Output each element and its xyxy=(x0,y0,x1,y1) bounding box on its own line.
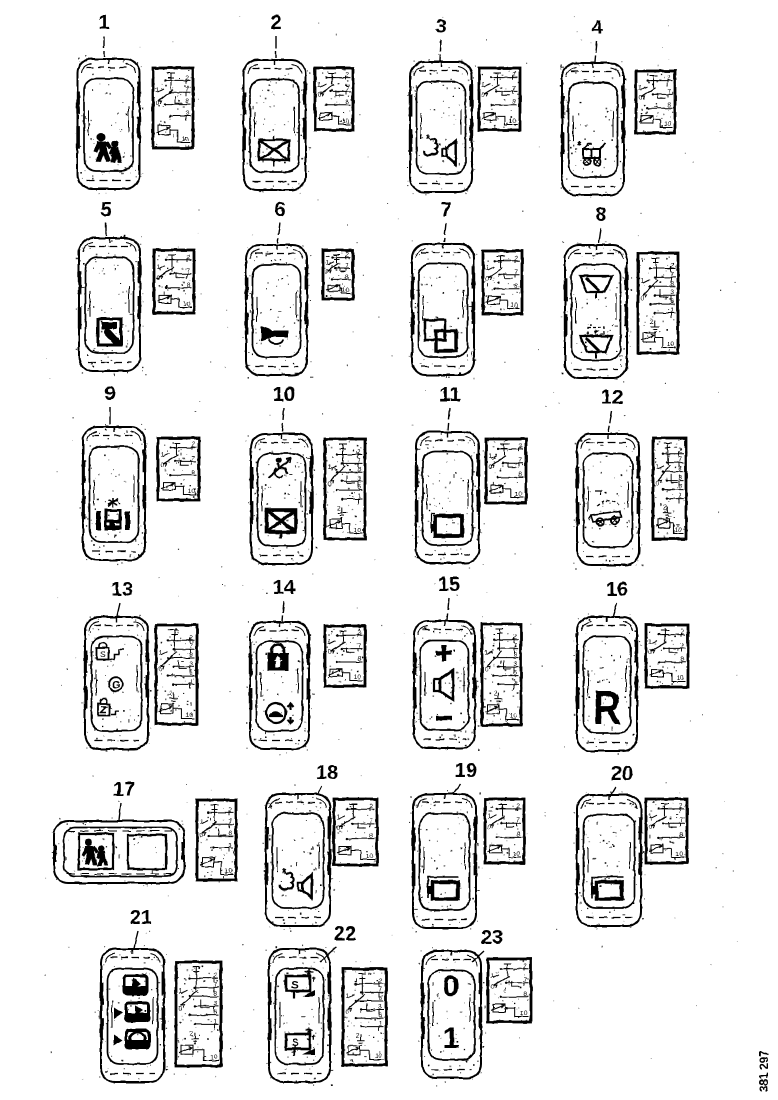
svg-text:0: 0 xyxy=(328,481,332,488)
svg-text:381 297: 381 297 xyxy=(759,1050,771,1092)
svg-text:6: 6 xyxy=(189,670,193,677)
svg-text:21: 21 xyxy=(130,907,152,929)
svg-text:2: 2 xyxy=(270,12,281,34)
svg-text:18: 18 xyxy=(316,762,338,784)
svg-text:7: 7 xyxy=(357,457,361,464)
svg-text:2: 2 xyxy=(337,505,341,512)
svg-text:8: 8 xyxy=(357,466,361,473)
svg-text:G: G xyxy=(112,679,120,691)
svg-text:8: 8 xyxy=(514,283,518,290)
svg-text:8: 8 xyxy=(670,280,674,287)
svg-text:0: 0 xyxy=(488,824,492,831)
svg-text:7: 7 xyxy=(228,818,232,825)
svg-text:7: 7 xyxy=(189,643,193,650)
svg-text:7: 7 xyxy=(512,85,516,92)
svg-text:1: 1 xyxy=(328,464,332,471)
svg-text:22: 22 xyxy=(334,923,356,945)
svg-text:7: 7 xyxy=(440,199,451,221)
svg-text:2: 2 xyxy=(228,806,232,813)
svg-text:3: 3 xyxy=(189,661,193,668)
svg-text:2: 2 xyxy=(345,72,349,79)
svg-text:0: 0 xyxy=(641,295,645,302)
svg-text:20: 20 xyxy=(611,763,633,785)
svg-text:1: 1 xyxy=(639,85,643,92)
svg-text:8: 8 xyxy=(189,652,193,659)
svg-text:1: 1 xyxy=(641,278,645,285)
svg-text:8: 8 xyxy=(523,991,527,998)
svg-text:3: 3 xyxy=(513,661,517,668)
svg-text:1: 1 xyxy=(649,813,653,820)
svg-text:1: 1 xyxy=(213,1018,217,1025)
svg-text:8: 8 xyxy=(378,995,382,1002)
svg-text:8: 8 xyxy=(518,471,522,478)
svg-text:8: 8 xyxy=(213,991,217,998)
svg-text:0: 0 xyxy=(179,1006,183,1013)
svg-text:10: 10 xyxy=(667,341,675,348)
svg-text:0: 0 xyxy=(346,1009,350,1016)
svg-text:1: 1 xyxy=(318,82,322,89)
svg-text:1: 1 xyxy=(357,493,361,500)
svg-text:7: 7 xyxy=(667,88,671,95)
svg-text:3: 3 xyxy=(670,289,674,296)
svg-text:10: 10 xyxy=(366,853,374,860)
svg-text:2: 2 xyxy=(667,75,671,82)
svg-text:1: 1 xyxy=(326,260,330,267)
svg-text:10: 10 xyxy=(510,713,518,720)
svg-text:8: 8 xyxy=(680,656,684,663)
svg-text:1: 1 xyxy=(678,493,682,500)
svg-text:S: S xyxy=(100,649,106,659)
svg-text:1: 1 xyxy=(337,814,341,821)
svg-text:2: 2 xyxy=(378,978,382,985)
svg-text:10: 10 xyxy=(509,118,517,125)
svg-text:2: 2 xyxy=(512,72,516,79)
svg-text:1: 1 xyxy=(200,819,204,826)
svg-text:1: 1 xyxy=(491,973,495,980)
svg-text:10: 10 xyxy=(675,527,683,534)
svg-text:0: 0 xyxy=(639,95,643,102)
svg-text:0: 0 xyxy=(443,970,460,1003)
svg-text:2: 2 xyxy=(670,263,674,270)
svg-text:1: 1 xyxy=(649,639,653,646)
svg-text:3: 3 xyxy=(213,1000,217,1007)
svg-text:1: 1 xyxy=(189,678,193,685)
svg-text:7: 7 xyxy=(514,269,518,276)
svg-text:8: 8 xyxy=(369,833,373,840)
svg-text:2: 2 xyxy=(650,319,654,326)
svg-text:1: 1 xyxy=(159,650,163,657)
svg-text:1: 1 xyxy=(489,453,493,460)
svg-text:10: 10 xyxy=(513,851,521,858)
svg-text:10: 10 xyxy=(677,675,685,682)
svg-text:7: 7 xyxy=(378,986,382,993)
svg-text:10: 10 xyxy=(342,287,350,294)
svg-text:0: 0 xyxy=(326,268,330,275)
svg-text:2: 2 xyxy=(213,972,217,979)
svg-text:11: 11 xyxy=(439,384,460,406)
svg-text:12: 12 xyxy=(601,387,623,409)
svg-text:7: 7 xyxy=(186,268,190,275)
svg-text:8: 8 xyxy=(512,99,516,106)
svg-text:0: 0 xyxy=(159,667,163,674)
svg-text:7: 7 xyxy=(680,642,684,649)
svg-text:7: 7 xyxy=(345,85,349,92)
svg-text:10: 10 xyxy=(354,674,362,681)
svg-text:0: 0 xyxy=(649,824,653,831)
svg-text:8: 8 xyxy=(516,831,520,838)
svg-text:8: 8 xyxy=(185,98,189,105)
svg-text:3: 3 xyxy=(435,16,446,38)
svg-text:15: 15 xyxy=(438,574,460,596)
svg-text:10: 10 xyxy=(676,851,684,858)
svg-text:4: 4 xyxy=(591,17,603,39)
svg-text:R: R xyxy=(593,682,621,735)
svg-text:7: 7 xyxy=(185,86,189,93)
svg-text:10: 10 xyxy=(354,527,362,534)
svg-text:8: 8 xyxy=(667,102,671,109)
svg-text:7: 7 xyxy=(213,981,217,988)
svg-text:1: 1 xyxy=(486,265,490,272)
svg-text:9: 9 xyxy=(104,383,115,405)
svg-text:1: 1 xyxy=(98,12,109,34)
svg-text:0: 0 xyxy=(485,667,489,674)
svg-text:8: 8 xyxy=(191,469,195,476)
svg-text:0: 0 xyxy=(649,649,653,656)
svg-text:2: 2 xyxy=(191,442,195,449)
svg-text:2: 2 xyxy=(369,803,373,810)
svg-text:8: 8 xyxy=(345,99,349,106)
svg-text:3: 3 xyxy=(185,110,189,117)
svg-text:7: 7 xyxy=(523,977,527,984)
svg-text:10: 10 xyxy=(210,1054,218,1061)
svg-text:0: 0 xyxy=(328,649,332,656)
svg-text:8: 8 xyxy=(228,830,232,837)
svg-text:10: 10 xyxy=(273,384,295,406)
svg-text:16: 16 xyxy=(606,579,628,601)
svg-text:2: 2 xyxy=(680,629,684,636)
svg-text:1: 1 xyxy=(488,813,492,820)
svg-text:2: 2 xyxy=(356,1032,360,1039)
svg-text:10: 10 xyxy=(375,1053,383,1060)
svg-text:1: 1 xyxy=(328,639,332,646)
svg-text:0: 0 xyxy=(656,481,660,488)
svg-text:0: 0 xyxy=(161,462,165,469)
svg-text:0: 0 xyxy=(482,92,486,99)
svg-text:6: 6 xyxy=(378,1012,382,1019)
svg-text:2: 2 xyxy=(523,963,527,970)
svg-text:10: 10 xyxy=(186,712,194,719)
svg-text:10: 10 xyxy=(664,121,672,128)
svg-text:2: 2 xyxy=(189,634,193,641)
svg-text:8: 8 xyxy=(186,282,190,289)
svg-text:1: 1 xyxy=(346,993,350,1000)
svg-text:1: 1 xyxy=(378,1021,382,1028)
svg-text:6: 6 xyxy=(274,199,285,221)
svg-text:17: 17 xyxy=(113,779,135,801)
svg-text:7: 7 xyxy=(516,817,520,824)
svg-text:3: 3 xyxy=(228,842,232,849)
svg-text:1: 1 xyxy=(179,988,183,995)
svg-text:5: 5 xyxy=(100,199,111,221)
svg-text:2: 2 xyxy=(494,691,498,698)
svg-text:7: 7 xyxy=(678,457,682,464)
svg-text:6: 6 xyxy=(357,484,361,491)
svg-text:3: 3 xyxy=(378,1004,382,1011)
svg-text:6: 6 xyxy=(513,670,517,677)
svg-text:7: 7 xyxy=(679,817,683,824)
svg-text:7: 7 xyxy=(369,818,373,825)
svg-text:10: 10 xyxy=(183,301,191,308)
svg-text:1: 1 xyxy=(482,82,486,89)
svg-text:2: 2 xyxy=(357,449,361,456)
svg-text:8: 8 xyxy=(679,831,683,838)
svg-text:2: 2 xyxy=(514,255,518,262)
svg-text:2: 2 xyxy=(663,505,667,512)
svg-text:8: 8 xyxy=(595,204,606,226)
svg-text:7: 7 xyxy=(357,643,361,650)
svg-text:1: 1 xyxy=(156,87,160,94)
svg-text:10: 10 xyxy=(182,136,190,143)
svg-text:0: 0 xyxy=(491,984,495,991)
svg-text:10: 10 xyxy=(511,302,519,309)
svg-text:1: 1 xyxy=(485,649,489,656)
svg-text:0: 0 xyxy=(200,833,204,840)
svg-text:1: 1 xyxy=(161,452,165,459)
svg-text:19: 19 xyxy=(455,760,477,782)
svg-text:8: 8 xyxy=(357,656,361,663)
svg-text:23: 23 xyxy=(481,927,503,949)
svg-text:2: 2 xyxy=(186,254,190,261)
svg-text:14: 14 xyxy=(273,577,296,599)
svg-text:2: 2 xyxy=(185,74,189,81)
svg-text:0: 0 xyxy=(318,92,322,99)
svg-text:1: 1 xyxy=(656,463,660,470)
svg-text:2: 2 xyxy=(168,690,172,697)
svg-text:13: 13 xyxy=(111,579,133,601)
svg-text:3: 3 xyxy=(678,475,682,482)
svg-text:1: 1 xyxy=(443,1022,460,1055)
svg-text:0: 0 xyxy=(486,276,490,283)
svg-text:S: S xyxy=(291,980,298,992)
svg-text:8: 8 xyxy=(513,652,517,659)
